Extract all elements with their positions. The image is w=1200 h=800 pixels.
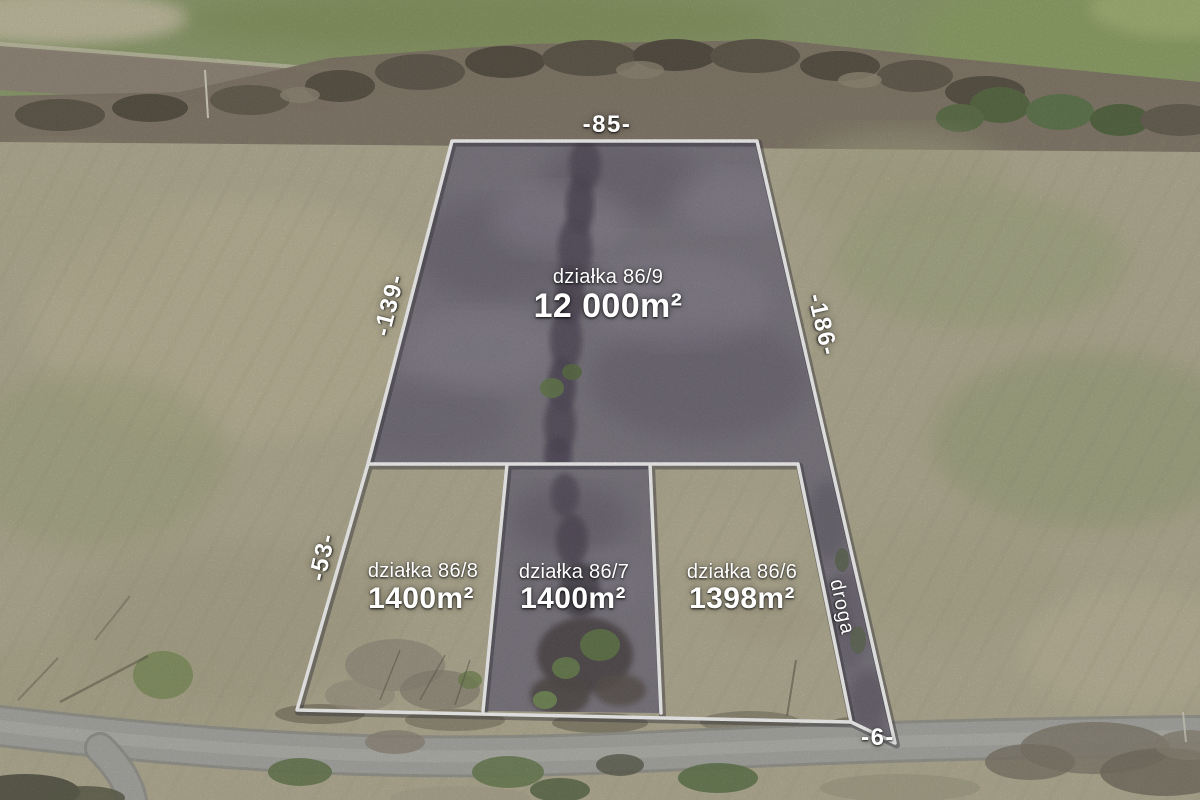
plot-86-9-name-label: działka 86/9	[553, 267, 663, 287]
plot-86-8-name-label: działka 86/8	[368, 561, 478, 581]
dimension-top-label: -85-	[583, 113, 632, 137]
plot-86-6-name-label: działka 86/6	[687, 562, 797, 582]
plot-86-8-area-label: 1400m²	[368, 584, 474, 614]
dimension-bottom-label: -6-	[861, 726, 895, 750]
plot-86-7-area-label: 1400m²	[520, 584, 626, 614]
aerial-parcel-photo: -85- -139- -186- -53- -6- droga działka …	[0, 0, 1200, 800]
plot-86-6-area-label: 1398m²	[689, 584, 795, 614]
plot-86-9-area-label: 12 000m²	[534, 289, 683, 323]
plot-86-7-name-label: działka 86/7	[519, 562, 629, 582]
